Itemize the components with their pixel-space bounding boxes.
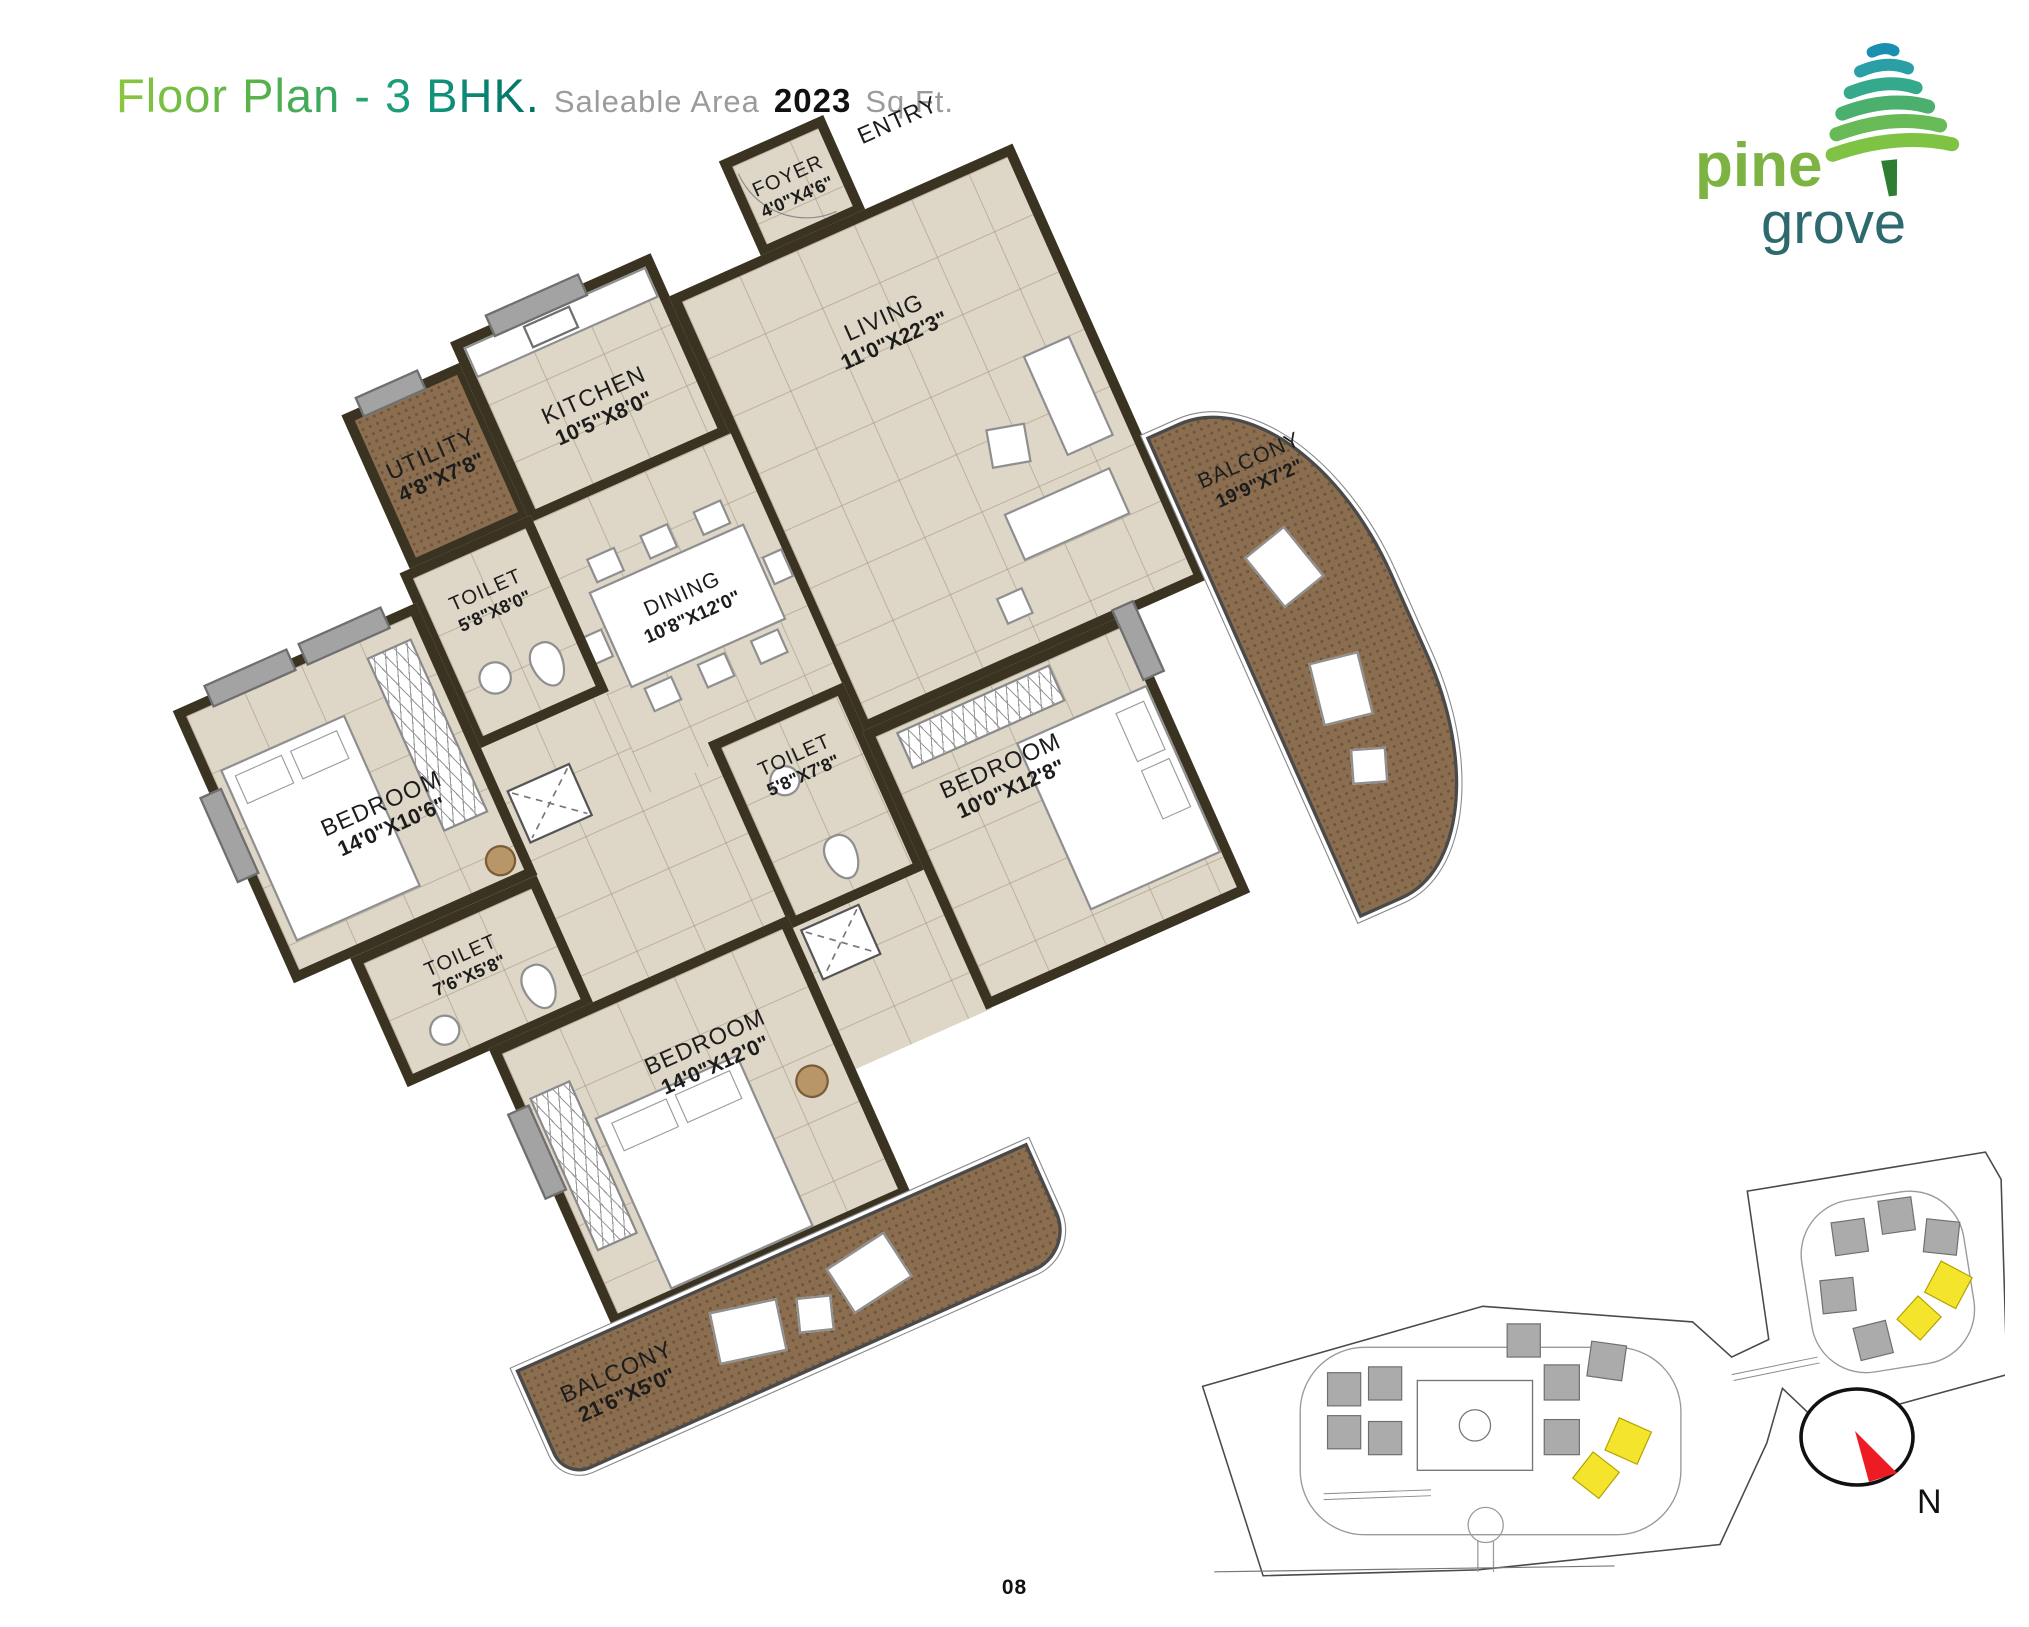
page-title-main: Floor Plan - 3 BHK. [116,68,540,123]
toilet-wc [515,958,565,1015]
dining-chair [696,652,736,689]
pillow [290,730,350,780]
pine-grove-logo: pine grove [1695,38,1985,273]
chair [480,840,521,881]
page-number: 08 [0,1576,2029,1600]
coffee-table [985,422,1032,469]
toilet-wc [817,829,867,886]
brochure-page: Floor Plan - 3 BHK. Saleable Area 2023 S… [0,0,2029,1627]
double-bed [1016,685,1222,911]
pillow [1115,701,1166,763]
pillow [1141,758,1192,820]
dining-table: DINING 10'8"X12'0" [588,523,786,688]
washbasin [424,1009,465,1050]
pillow [611,1098,679,1151]
lounge-chair [1244,525,1325,608]
pillow [235,755,295,805]
balcony-table [1350,747,1388,785]
logo-text-grove: grove [1761,190,1906,257]
lounge-chair [1308,651,1374,726]
entry-label: ENTRY [854,91,942,150]
north-label: N [1917,1483,1942,1522]
side-table [996,587,1034,625]
washbasin [473,656,517,700]
room-label: TOILET 7'6"X5'8" [421,929,510,1002]
compass-icon [1795,1385,1935,1505]
dining-chair [643,675,683,712]
room-label: BALCONY 19'9"X7'2" [1195,428,1315,517]
dining-chair [750,628,790,665]
room-label: DINING 10'8"X12'0" [630,563,744,649]
room-label: TOILET 5'8"X7'8" [754,729,843,802]
balcony-table [795,1294,834,1333]
lounge-chair [825,1231,913,1314]
room-label: LIVING 11'0"X22'3" [826,282,952,378]
room-label: UTILITY 4'8"X7'8" [382,422,491,510]
room-label: KITCHEN 10'5"X8'0" [537,360,660,454]
saleable-area-label: Saleable Area [554,84,760,120]
north-compass: N [1795,1385,1965,1535]
sofa [1003,467,1130,561]
room-label: TOILET 5'8"X8'0" [446,564,535,637]
sofa [1022,335,1114,456]
toilet-wc [523,636,573,693]
chair [790,1059,834,1103]
room-label: BALCONY 21'6"X5'0" [556,1335,688,1433]
lounge-chair [709,1298,788,1365]
